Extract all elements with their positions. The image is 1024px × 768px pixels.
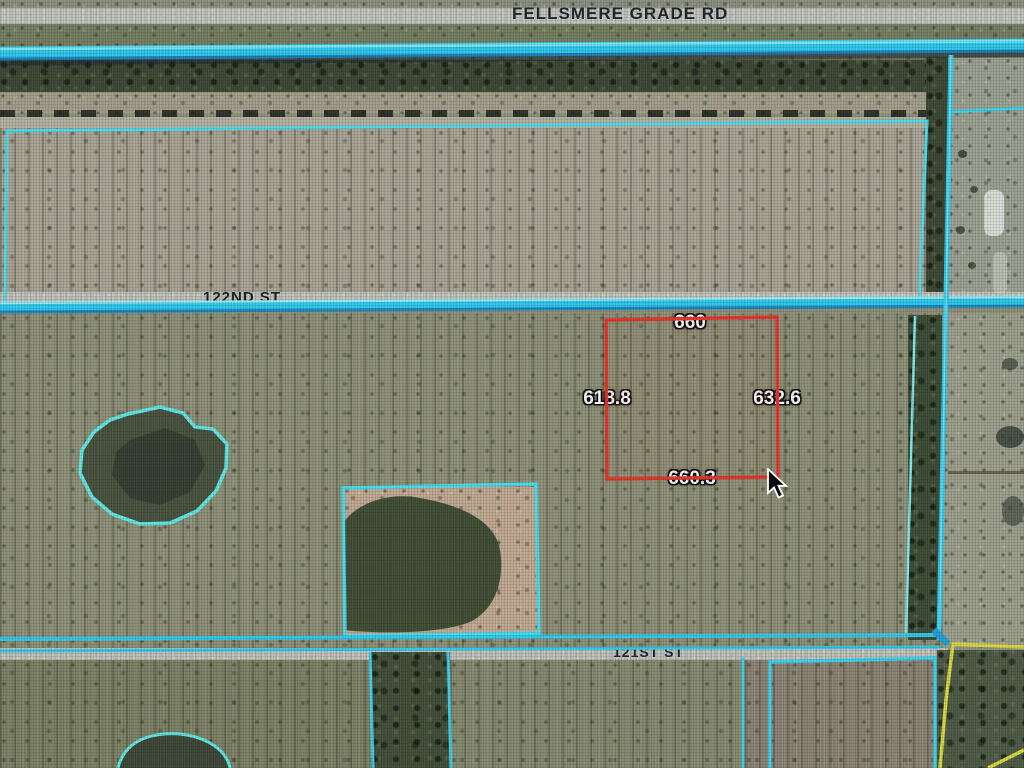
parcel-line-south-2[interactable] bbox=[448, 652, 451, 768]
parcel-line-right-top[interactable] bbox=[949, 108, 1024, 112]
selected-parcel-outline[interactable] bbox=[606, 317, 778, 479]
boundary-yellow[interactable] bbox=[940, 644, 1024, 768]
road-junction-nub bbox=[934, 630, 948, 644]
gis-overlay bbox=[0, 0, 1024, 768]
cursor-arrow-icon bbox=[766, 468, 792, 505]
parcel-boundary-upper[interactable] bbox=[5, 121, 927, 303]
road-boundary-vertical-east-core bbox=[939, 55, 951, 640]
road-boundary-121st-b bbox=[0, 647, 940, 651]
road-boundary-121st-a[interactable] bbox=[0, 635, 938, 639]
vegetation-blob bbox=[344, 496, 501, 632]
aerial-map-canvas[interactable]: FELLSMERE GRADE RD 122ND ST 121ST ST 660… bbox=[0, 0, 1024, 768]
parcel-line-south-1[interactable] bbox=[370, 652, 373, 768]
parcel-boundary-south-east[interactable] bbox=[770, 658, 935, 768]
parcel-edge-light-east[interactable] bbox=[906, 316, 915, 634]
boundary-yellow-corner[interactable] bbox=[988, 750, 1024, 768]
pond-bottom-left-fill bbox=[118, 734, 230, 768]
